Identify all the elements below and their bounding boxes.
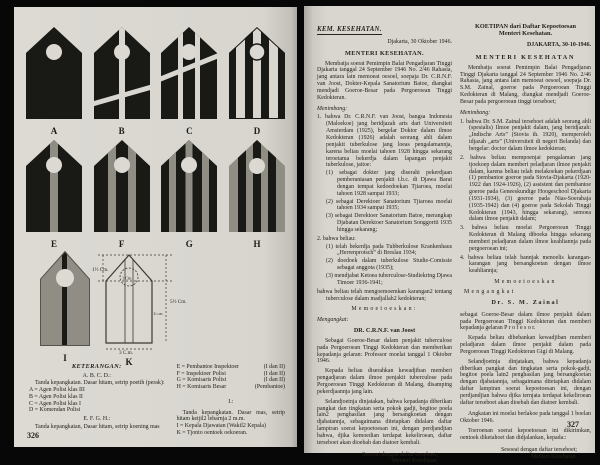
consideration-item: 1. bahwa Dr. C.R.N.F. van Joost, bangsa …: [317, 114, 452, 169]
closing-line: Menteri Kesehatan.: [460, 454, 591, 461]
badge-h-label: H: [228, 239, 286, 249]
badge-d: D: [228, 27, 286, 136]
page-number-left: 326: [27, 431, 39, 440]
koetipan-header-line1: KOETIPAN dari Daftar Kepoetoesan: [460, 23, 591, 30]
measure-top: 1½ Cm.: [92, 266, 109, 273]
page-number-right: 327: [567, 420, 579, 429]
appointment-paragraph: Sebagai Goeroe-Besar dalam penjakit tube…: [317, 338, 452, 365]
closing-line: Sesoeai dengan daftar terseboet,: [317, 452, 452, 459]
legend-efgh-desc: Tanda kepangkatan, Dasar hitam, setrip k…: [29, 424, 165, 431]
dateline: DJAKARTA, 30-10-1946.: [460, 42, 591, 49]
ministry-header: KEM. KESEHATAN.: [317, 27, 452, 34]
badge-b-graphic: [94, 27, 150, 119]
legend-item-name: E = Pembantoe Inspektoer: [177, 364, 239, 371]
badge-a-label: A: [25, 126, 83, 136]
diagram-k-graphic: 1½ Cm. 1 Cm. 5½ Cm. 4 c.m. 3 C.m.: [92, 241, 196, 355]
badge-row-1: A B: [25, 27, 286, 136]
ministry-header-text: KEM. KESEHATAN.: [317, 26, 382, 35]
badge-d-graphic: [229, 27, 285, 119]
mengangkat-label: Mengangkat:: [317, 317, 452, 324]
badge-row-2: E F: [25, 140, 286, 249]
consideration-item: 4. bahwa beliau telah bannjak menoelis k…: [460, 255, 591, 276]
consideration-subitem: (3) mendjabat Ketoea tuberculose-Studiek…: [326, 273, 452, 287]
consideration-item: 2. bahwa beliau:: [317, 236, 452, 243]
appointment-paragraph: sebagai Goeroe-Besar dalam ilmoe penjaki…: [460, 312, 591, 333]
duty-paragraph: Kepada beliau diserahkan kewadjiban memb…: [317, 368, 452, 395]
badge-e: E: [25, 140, 83, 249]
menimbang-label: Menimbang:: [317, 106, 452, 113]
badge-b-label: B: [93, 126, 151, 136]
badge-i-label: I: [40, 353, 90, 363]
legend-efgh-heading: E. F. G. H.:: [29, 416, 165, 423]
badge-i: I: [40, 251, 90, 363]
consideration-item: bahwa beliau telah mengoemoemkan karanga…: [317, 289, 452, 303]
badge-h: H: [228, 140, 286, 249]
decree-title: MENTERI KESEHATAN.: [317, 51, 452, 58]
memoetoeskan-label: Memoetoeskan:: [317, 306, 452, 313]
consideration-subitem: (1) sebagai dokter jang diserahi pekerdj…: [326, 170, 452, 197]
legend-item: D = Komendan Polisi: [29, 407, 165, 414]
consideration-item: 1. bahwa Dr. S.M. Zainal terseboet adala…: [460, 119, 591, 153]
duty-paragraph: Kepada beliau dibebankan kewadjiban memb…: [460, 335, 591, 356]
consideration-subitem: (2) doedoek dalam tuberkulose Studie-Com…: [326, 258, 452, 272]
legend-i-desc: Tanda kepangkatan. Dasar mas, setrip hit…: [177, 410, 285, 423]
badge-f-graphic: [94, 140, 150, 232]
measure-height: 5½ Cm.: [170, 298, 187, 305]
legend-item: H = Komisaris Besar (Pembantoe): [177, 384, 285, 391]
decree-title: MENTERI KESEHATAN: [460, 55, 591, 62]
legend-item-name: H = Komisaris Besar: [177, 384, 227, 391]
legend-col-2: E = Pembantoe Inspektoer (I dan II) F = …: [177, 364, 285, 436]
legend-item: E = Pembantoe Inspektoer (I dan II): [177, 364, 285, 371]
legend-item-suffix: (Pembantoe): [255, 384, 285, 391]
legend-item: K = Tjonto oentoek oekoeran.: [177, 430, 285, 437]
decree-van-joost: KEM. KESEHATAN. Djakarta, 30 Oktober 194…: [317, 27, 452, 465]
consideration-item: 2. bahwa beliau mempoenjai pengalaman ja…: [460, 155, 591, 223]
intro-paragraph: Membatja soerat Pemimpin Balai Pengadjar…: [317, 61, 452, 102]
legend-title: KETERANGAN:: [29, 364, 165, 371]
legend-abcd-heading: A. B. C. D.:: [29, 373, 165, 380]
legend-item: B = Agen Polisi klas II: [29, 394, 165, 401]
badge-g: G: [160, 140, 218, 249]
measure-circle: 1 Cm.: [122, 276, 132, 281]
memoetoeskan-label: Memoetoeskan: [460, 279, 591, 286]
consideration-subitem: (2) sebagai Derektoer Sanatorium Tjiaroe…: [326, 199, 452, 213]
measure-inner-height: 4 c.m.: [154, 311, 164, 316]
book-scan: A B: [0, 0, 600, 465]
legend-item: C = Agen Polisi klas I: [29, 401, 165, 408]
badge-i-graphic: [40, 251, 90, 346]
badge-e-graphic: [26, 140, 82, 232]
consideration-item: 3. bahwa beliau moelai Pergoeroean Tingg…: [460, 225, 591, 252]
legend-col-1: KETERANGAN: A. B. C. D.: Tanda kepangkat…: [29, 364, 165, 436]
appointee-name: DR. C.R.N.F. van Joost: [317, 328, 452, 335]
diagram-k: 1½ Cm. 1 Cm. 5½ Cm. 4 c.m. 3 C.m.: [92, 241, 196, 360]
legend-abcd-desc: Tanda kepangkatan. Dasar hitam, setrip p…: [29, 380, 165, 387]
legend-item: A = Agen Polisi klas III: [29, 387, 165, 394]
badge-c-graphic: [161, 27, 217, 119]
badge-g-graphic: [161, 140, 217, 232]
legend: KETERANGAN: A. B. C. D.: Tanda kepangkat…: [29, 364, 285, 436]
badge-h-graphic: [229, 140, 285, 232]
salary-paragraph: Selandjoetnja dinjatakan, bahwa kepadanj…: [317, 399, 452, 447]
legend-i-heading: I.:: [177, 399, 285, 406]
legend-item-name: F = Inspektoer Polisi: [177, 371, 226, 378]
badge-c-label: C: [160, 126, 218, 136]
decree-zainal: KOETIPAN dari Daftar Kepoetoesan Menteri…: [460, 23, 591, 461]
badge-b: B: [93, 27, 151, 136]
dateline: Djakarta, 30 Oktober 1946.: [317, 39, 452, 46]
consideration-subitem: (3) sebagai Derektoer Sanatorium Batoe, …: [326, 213, 452, 234]
copies-paragraph: Toeroenan soerat kepoetoesan ini dikirim…: [460, 428, 591, 442]
menimbang-label: Menimbang:: [460, 110, 591, 117]
koetipan-header-line2: Menteri Kesehatan.: [460, 30, 591, 37]
badge-c: C: [160, 27, 218, 136]
badge-d-label: D: [228, 126, 286, 136]
badge-a-graphic: [26, 27, 82, 119]
closing-line: Sesoeai dengan daftar terseboet;: [460, 447, 591, 454]
appointee-name: Dr. S. M. Zainal: [460, 300, 591, 307]
intro-paragraph: Membatja soerat Pemimpin Balai Pengadjar…: [460, 65, 591, 106]
closing-line: Menteri Kesehatan,: [317, 458, 452, 465]
consideration-subitem: (1) telah bekerdja pada Tubberkulose Kra…: [326, 244, 452, 258]
salary-paragraph: Selandjoetnja dinjatakan, bahwa kepadanj…: [460, 359, 591, 407]
legend-item-name: G = Komisaris Polisi: [177, 377, 227, 384]
right-page: KEM. KESEHATAN. Djakarta, 30 Oktober 194…: [304, 6, 595, 453]
mengangkat-label: Mengangkat: [464, 289, 591, 296]
badge-f: F: [93, 140, 151, 249]
legend-item: I = Kepala Djawatan (Wakil2 Kepala): [177, 423, 285, 430]
legend-item-suffix: (I dan II): [264, 364, 285, 371]
left-page: A B: [14, 7, 297, 447]
badge-e-label: E: [25, 239, 83, 249]
badge-a: A: [25, 27, 83, 136]
measure-width: 3 C.m.: [119, 350, 133, 355]
